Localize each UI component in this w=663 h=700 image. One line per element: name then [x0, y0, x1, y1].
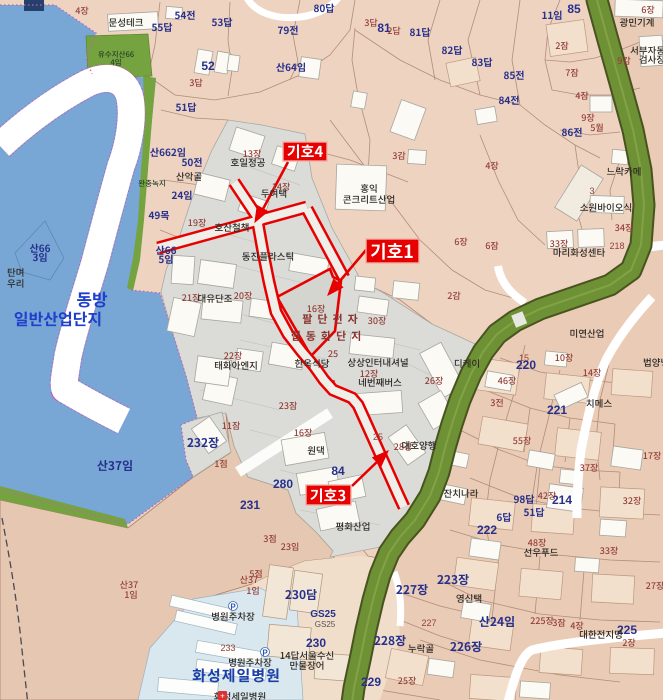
- svg-text:221: 221: [547, 403, 567, 417]
- svg-text:231: 231: [240, 498, 260, 512]
- svg-text:P: P: [262, 649, 268, 658]
- svg-text:222: 222: [477, 523, 497, 537]
- svg-text:15: 15: [519, 353, 529, 363]
- svg-text:229: 229: [361, 675, 381, 689]
- svg-text:218: 218: [609, 241, 624, 251]
- svg-text:3: 3: [589, 186, 594, 196]
- svg-text:227: 227: [421, 618, 436, 628]
- svg-text:P: P: [230, 603, 236, 612]
- svg-text:225: 225: [617, 623, 637, 637]
- svg-text:233: 233: [220, 643, 235, 653]
- svg-text:214: 214: [552, 493, 572, 507]
- svg-text:85: 85: [567, 2, 581, 16]
- svg-text:52: 52: [201, 59, 215, 73]
- svg-text:25: 25: [373, 432, 383, 442]
- svg-text:+: +: [220, 692, 225, 700]
- svg-text:84: 84: [331, 464, 345, 478]
- svg-text:GS25: GS25: [310, 609, 336, 620]
- svg-text:GS25: GS25: [315, 620, 336, 629]
- svg-text:280: 280: [273, 477, 293, 491]
- svg-text:230: 230: [306, 636, 326, 650]
